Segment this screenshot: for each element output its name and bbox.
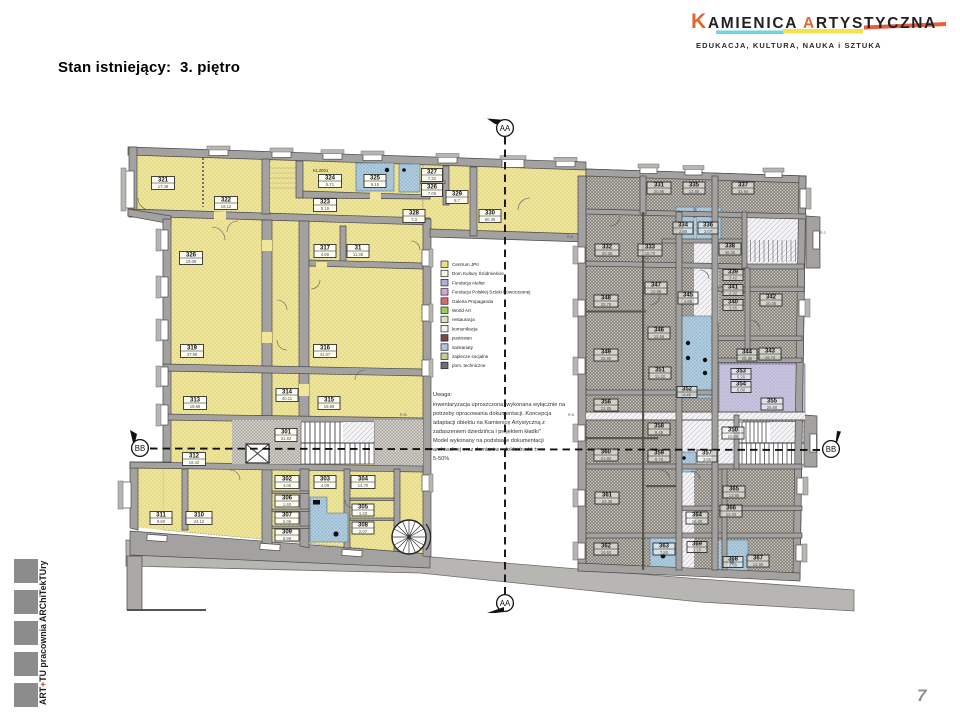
svg-text:19.42: 19.42 [189, 460, 200, 465]
svg-text:restauracja: restauracja [452, 317, 475, 322]
svg-text:15.70: 15.70 [645, 251, 656, 256]
svg-text:37.98: 37.98 [187, 352, 198, 357]
svg-text:komunikacja: komunikacja [452, 326, 478, 331]
svg-text:46.05: 46.05 [725, 250, 736, 255]
svg-text:337: 337 [738, 183, 749, 189]
svg-text:19.89: 19.89 [190, 404, 201, 409]
svg-text:346: 346 [654, 328, 665, 334]
svg-text:R.D: R.D [567, 235, 574, 239]
svg-text:304: 304 [358, 477, 369, 483]
svg-text:4.09: 4.09 [321, 483, 330, 488]
svg-text:363: 363 [659, 544, 670, 550]
svg-text:1.40: 1.40 [283, 502, 292, 507]
svg-text:319: 319 [187, 346, 198, 352]
svg-text:3.10: 3.10 [693, 548, 702, 553]
svg-text:358: 358 [654, 424, 665, 430]
svg-text:312: 312 [189, 454, 200, 460]
svg-text:348: 348 [601, 296, 612, 302]
svg-text:367: 367 [753, 556, 764, 562]
svg-text:14.95: 14.95 [753, 562, 764, 567]
svg-text:2.90: 2.90 [679, 229, 688, 234]
svg-text:Galeria Propaganda: Galeria Propaganda [452, 299, 494, 304]
svg-text:zaplecze socjalne: zaplecze socjalne [452, 354, 489, 359]
svg-text:Fundacja Polskiej Sztuki Nowoc: Fundacja Polskiej Sztuki Nowoczesnej [452, 290, 530, 295]
svg-text:301: 301 [281, 430, 292, 436]
svg-text:342: 342 [766, 295, 777, 301]
svg-text:334: 334 [678, 223, 689, 229]
svg-text:19.89: 19.89 [324, 404, 335, 409]
svg-text:328: 328 [409, 211, 420, 217]
svg-text:365: 365 [729, 487, 740, 493]
svg-text:317: 317 [320, 246, 331, 252]
svg-text:2.95: 2.95 [729, 563, 738, 568]
svg-text:308: 308 [358, 523, 369, 529]
svg-text:10.88: 10.88 [651, 289, 662, 294]
svg-text:BB: BB [826, 445, 836, 454]
svg-text:AA: AA [500, 124, 511, 133]
svg-text:307: 307 [282, 513, 293, 519]
svg-text:60.39: 60.39 [485, 217, 496, 222]
svg-text:20.88: 20.88 [742, 356, 753, 361]
svg-text:31: 31 [355, 246, 362, 252]
svg-text:349: 349 [601, 350, 612, 356]
svg-text:6.71: 6.71 [326, 182, 335, 187]
svg-text:21.60: 21.60 [601, 456, 612, 461]
svg-text:Centrum JPII: Centrum JPII [452, 262, 479, 267]
svg-text:25.60: 25.60 [767, 405, 778, 410]
svg-text:5-50%: 5-50% [433, 456, 449, 462]
svg-text:361: 361 [602, 493, 613, 499]
svg-text:359: 359 [654, 451, 665, 457]
svg-text:3.42: 3.42 [729, 276, 738, 281]
svg-text:6.15: 6.15 [371, 182, 380, 187]
svg-text:3.65: 3.65 [703, 457, 712, 462]
svg-text:336: 336 [703, 223, 714, 229]
svg-text:24.12: 24.12 [194, 519, 205, 524]
svg-text:7.22: 7.22 [428, 176, 437, 181]
svg-text:321: 321 [158, 178, 169, 184]
svg-text:R.2: R.2 [820, 231, 826, 235]
svg-text:14.70: 14.70 [358, 483, 369, 488]
svg-text:324: 324 [325, 176, 336, 182]
svg-text:364: 364 [692, 513, 703, 519]
svg-text:7.80: 7.80 [660, 550, 669, 555]
svg-text:9.45: 9.45 [655, 430, 664, 435]
svg-text:355: 355 [767, 399, 778, 405]
svg-text:326: 326 [427, 185, 438, 191]
svg-text:343: 343 [765, 349, 776, 355]
svg-text:315: 315 [324, 398, 335, 404]
svg-text:360: 360 [601, 450, 612, 456]
svg-text:12.56: 12.56 [654, 334, 665, 339]
svg-text:10.09: 10.09 [728, 434, 739, 439]
svg-text:332: 332 [602, 245, 613, 251]
svg-text:R.D: R.D [568, 413, 575, 417]
svg-text:306: 306 [282, 496, 293, 502]
svg-text:2.32: 2.32 [729, 291, 738, 296]
svg-text:19.50: 19.50 [601, 550, 612, 555]
svg-text:BB: BB [135, 444, 145, 453]
svg-text:archiwalnej oraz domiarów - do: archiwalnej oraz domiarów - dokładność ± [433, 447, 537, 453]
svg-text:344: 344 [742, 350, 753, 356]
svg-text:3.45: 3.45 [729, 306, 738, 311]
svg-text:4.85: 4.85 [684, 299, 693, 304]
svg-text:310: 310 [194, 513, 205, 519]
svg-text:329: 329 [452, 192, 463, 198]
svg-text:8.70: 8.70 [655, 457, 664, 462]
svg-text:4.66: 4.66 [321, 252, 330, 257]
svg-text:Fundacja Atelier: Fundacja Atelier [452, 280, 485, 285]
svg-text:24.35: 24.35 [602, 499, 613, 504]
svg-text:potrzeby opracowania dokumenta: potrzeby opracowania dokumentacji. Konce… [433, 411, 552, 417]
svg-text:R.Di: R.Di [400, 413, 407, 417]
svg-text:351: 351 [655, 368, 666, 374]
svg-text:2.06: 2.06 [283, 519, 292, 524]
svg-text:Model wykonany na podstawie do: Model wykonany na podstawie dokumentacji [433, 438, 544, 444]
svg-text:3.07: 3.07 [704, 229, 713, 234]
svg-text:16.72: 16.72 [765, 355, 776, 360]
svg-text:4.06: 4.06 [283, 483, 292, 488]
svg-text:326: 326 [186, 253, 197, 259]
svg-text:12.20: 12.20 [726, 512, 737, 517]
svg-text:17.48: 17.48 [158, 184, 169, 189]
svg-text:9.19: 9.19 [321, 206, 330, 211]
svg-text:331: 331 [654, 183, 665, 189]
svg-text:22.85: 22.85 [601, 406, 612, 411]
svg-text:7.3: 7.3 [411, 217, 417, 222]
svg-text:303: 303 [320, 477, 331, 483]
svg-text:13.85: 13.85 [729, 493, 740, 498]
svg-text:pustostan: pustostan [452, 336, 472, 341]
svg-text:20.95: 20.95 [654, 189, 665, 194]
svg-text:335: 335 [689, 183, 700, 189]
svg-text:311: 311 [156, 513, 166, 519]
svg-text:5.20: 5.20 [737, 375, 746, 380]
svg-text:20.05: 20.05 [766, 301, 777, 306]
svg-text:11.36: 11.36 [353, 252, 364, 257]
svg-text:6.98: 6.98 [283, 536, 292, 541]
svg-text:7.06: 7.06 [428, 191, 437, 196]
svg-text:309: 309 [282, 530, 293, 536]
svg-text:19.09: 19.09 [186, 259, 197, 264]
svg-text:8.7: 8.7 [454, 198, 460, 203]
svg-text:316: 316 [320, 346, 331, 352]
svg-text:sanitariaty: sanitariaty [452, 345, 474, 350]
svg-text:25.78: 25.78 [601, 302, 612, 307]
svg-text:1.33: 1.33 [359, 511, 368, 516]
svg-text:305: 305 [358, 505, 369, 511]
svg-text:366: 366 [726, 506, 737, 512]
svg-text:33.84: 33.84 [738, 189, 749, 194]
svg-text:350: 350 [728, 428, 739, 434]
svg-text:347: 347 [651, 283, 662, 289]
svg-text:330: 330 [485, 211, 496, 217]
svg-text:Uwaga:: Uwaga: [433, 392, 452, 398]
svg-text:362: 362 [601, 544, 612, 550]
svg-text:356: 356 [601, 400, 612, 406]
svg-text:pom. techniczne: pom. techniczne [452, 363, 486, 368]
svg-text:adaptacji obiektu na Kamienicę: adaptacji obiektu na Kamienicę Artystycz… [433, 420, 545, 426]
svg-text:9.80: 9.80 [157, 519, 166, 524]
svg-text:20.55: 20.55 [602, 251, 613, 256]
svg-text:40.11: 40.11 [282, 396, 293, 401]
svg-text:325: 325 [370, 176, 381, 182]
svg-text:327: 327 [427, 170, 438, 176]
svg-text:inwentaryzacja uproszczona, wy: inwentaryzacja uproszczona, wykonana wył… [433, 402, 566, 408]
svg-text:2.07: 2.07 [359, 529, 368, 534]
svg-text:313: 313 [190, 398, 201, 404]
svg-text:World Art: World Art [452, 308, 472, 313]
svg-text:6.80: 6.80 [737, 388, 746, 393]
svg-text:357: 357 [702, 451, 713, 457]
svg-text:Dom Kultury Śródmieście: Dom Kultury Śródmieście [452, 269, 504, 276]
svg-text:25.90: 25.90 [601, 356, 612, 361]
svg-text:12.80: 12.80 [689, 189, 700, 194]
svg-text:31.62: 31.62 [281, 436, 292, 441]
svg-text:41.07: 41.07 [320, 352, 331, 357]
svg-text:19.12: 19.12 [221, 204, 232, 209]
svg-text:323: 323 [320, 200, 331, 206]
svg-text:322: 322 [221, 198, 232, 204]
svg-text:314: 314 [282, 390, 293, 396]
svg-text:zadaszeniem dziedzińca i proje: zadaszeniem dziedzińca i projektem kładk… [433, 429, 541, 435]
svg-text:333: 333 [645, 245, 656, 251]
svg-text:11.42: 11.42 [655, 374, 666, 379]
svg-text:AA: AA [500, 599, 511, 608]
svg-text:4.40: 4.40 [683, 393, 692, 398]
svg-text:338: 338 [725, 244, 736, 250]
svg-text:345: 345 [683, 293, 694, 299]
svg-text:302: 302 [282, 477, 293, 483]
svg-text:KL3001: KL3001 [313, 168, 329, 173]
svg-text:15.30: 15.30 [692, 519, 703, 524]
